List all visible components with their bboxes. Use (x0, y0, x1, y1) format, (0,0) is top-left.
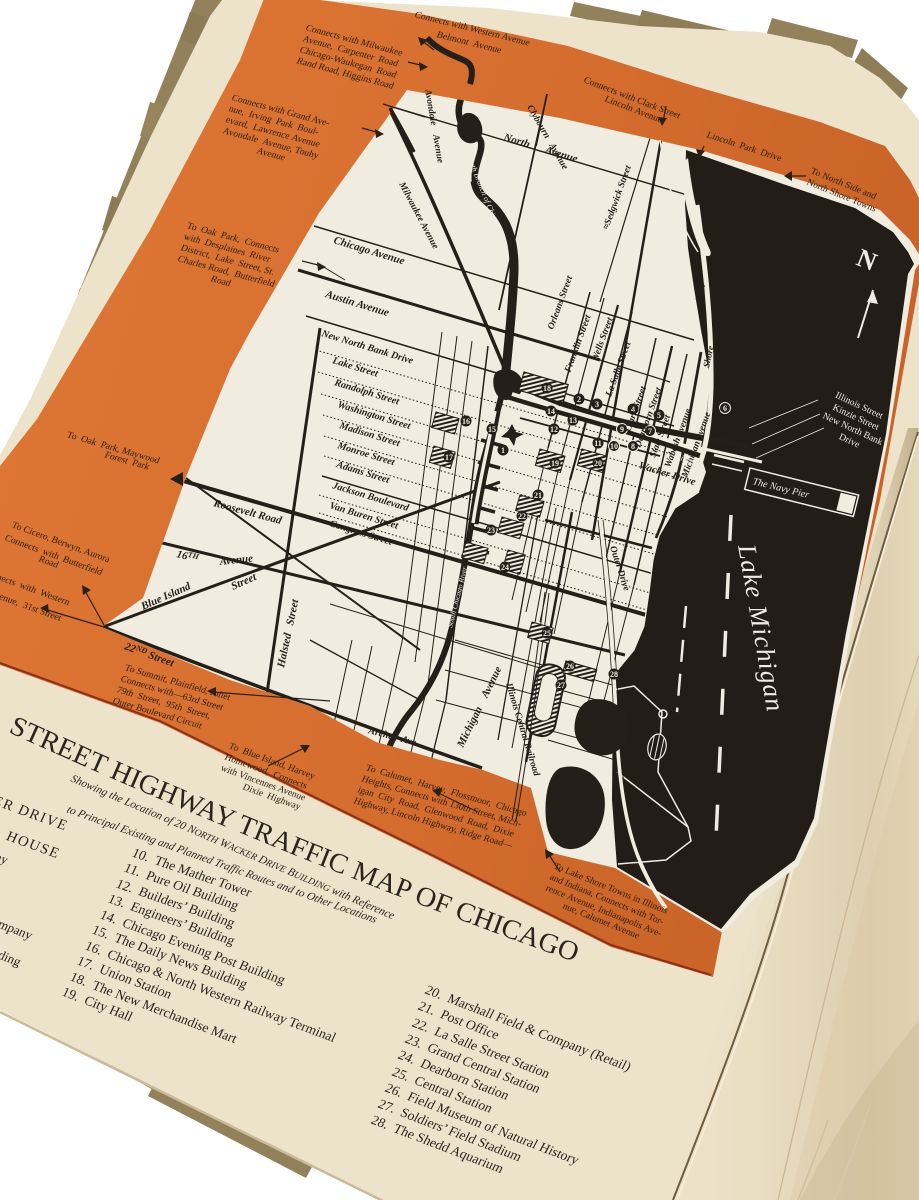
svg-text:13: 13 (569, 416, 577, 425)
svg-text:18: 18 (543, 384, 551, 393)
svg-text:20: 20 (594, 459, 602, 468)
svg-text:10: 10 (610, 442, 618, 451)
svg-text:14: 14 (547, 407, 555, 416)
svg-text:6: 6 (723, 404, 727, 413)
svg-text:21: 21 (534, 491, 542, 500)
svg-text:22: 22 (518, 512, 526, 521)
svg-text:3: 3 (595, 400, 599, 409)
svg-text:25: 25 (543, 629, 551, 638)
svg-text:23: 23 (487, 526, 495, 535)
svg-text:5: 5 (657, 411, 661, 420)
svg-text:19: 19 (551, 459, 559, 468)
svg-text:27: 27 (557, 681, 565, 690)
svg-text:15: 15 (488, 425, 496, 434)
svg-text:12: 12 (550, 425, 558, 434)
svg-text:11: 11 (594, 439, 602, 448)
svg-text:24: 24 (501, 563, 509, 572)
svg-text:2: 2 (577, 395, 581, 404)
svg-text:26: 26 (566, 662, 574, 671)
svg-text:17: 17 (445, 453, 453, 462)
svg-text:1: 1 (501, 446, 505, 455)
svg-text:28: 28 (610, 670, 618, 679)
svg-text:16: 16 (462, 417, 470, 426)
